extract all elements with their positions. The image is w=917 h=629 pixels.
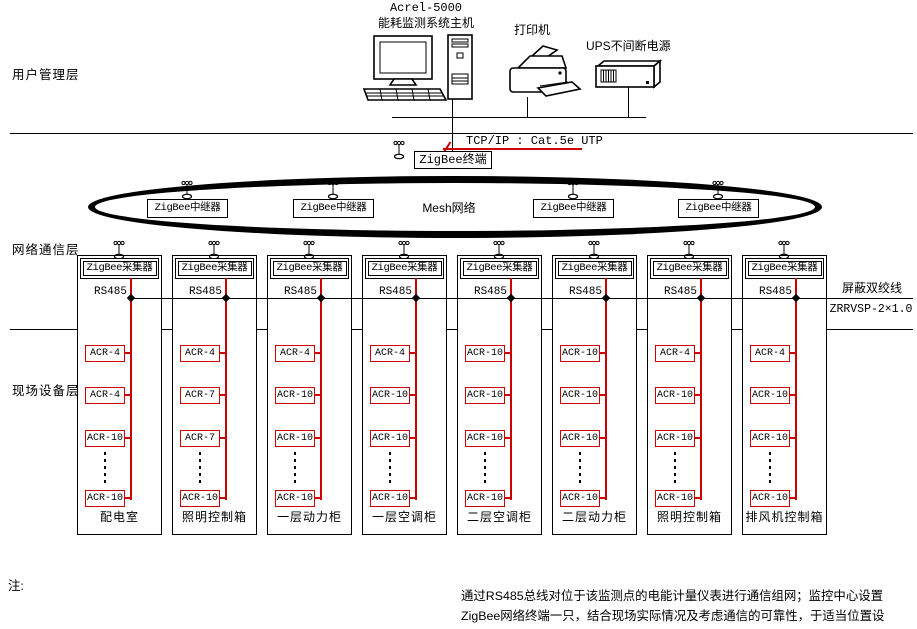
meter-connector bbox=[314, 437, 321, 439]
meter-box: ACR-10 bbox=[370, 430, 410, 447]
notes-left: 注: 1.该组网方式适合于旧工程改造及不便于施工布线的场所，整个组网方式采用Zi… bbox=[8, 536, 431, 629]
meter-connector bbox=[599, 394, 606, 396]
meter-box: ACR-10 bbox=[370, 387, 410, 404]
rs485-drop-line bbox=[320, 278, 322, 500]
zigbee-collector-label: ZigBee采集器 bbox=[558, 261, 632, 276]
meter-box: ACR-7 bbox=[180, 387, 220, 404]
monitor-point-column: ZigBee采集器 RS485 排风机控制箱 ACR-4ACR-10ACR-10… bbox=[742, 240, 827, 535]
meter-connector bbox=[219, 437, 226, 439]
meter-box: ACR-10 bbox=[655, 387, 695, 404]
rs485-label: RS485 bbox=[554, 286, 602, 298]
layer-label-network: 网络通信层 bbox=[12, 239, 80, 258]
monitor-point-column: ZigBee采集器 RS485 一层动力柜 ACR-4ACR-10ACR-10A… bbox=[267, 240, 352, 535]
meter-connector bbox=[694, 394, 701, 396]
meter-connector bbox=[694, 497, 701, 499]
zigbee-collector-label: ZigBee采集器 bbox=[653, 261, 727, 276]
printer-icon bbox=[502, 44, 584, 105]
antenna-icon bbox=[392, 140, 406, 165]
meter-box: ACR-4 bbox=[85, 345, 125, 362]
ellipsis-dots bbox=[104, 452, 107, 483]
ellipsis-dots bbox=[294, 452, 297, 483]
rs485-drop-line bbox=[225, 278, 227, 500]
lan-bus-line bbox=[392, 117, 646, 118]
rs485-drop-line bbox=[795, 278, 797, 500]
location-label: 一层空调柜 bbox=[362, 508, 447, 525]
meter-connector bbox=[409, 437, 416, 439]
tcpip-label: TCP/IP : Cat.5e UTP bbox=[466, 134, 603, 149]
rs485-drop-line bbox=[605, 278, 607, 500]
meter-connector bbox=[789, 352, 796, 354]
meter-connector bbox=[504, 394, 511, 396]
rs485-label: RS485 bbox=[269, 286, 317, 298]
antenna-icon bbox=[711, 180, 725, 205]
zigbee-collector-label: ZigBee采集器 bbox=[748, 261, 822, 276]
cable-type-label: ZRRVSP-2×1.0 bbox=[826, 303, 916, 316]
meter-box: ACR-7 bbox=[180, 430, 220, 447]
zigbee-collector-box: ZigBee采集器 bbox=[365, 258, 444, 279]
meter-connector bbox=[124, 352, 131, 354]
notes-right: 通过RS485总线对位于该监测点的电能计量仪表进行通信组网；监控中心设置ZigB… bbox=[461, 546, 884, 629]
zigbee-terminal-box: ZigBee终端 bbox=[414, 151, 492, 169]
ellipsis-dots bbox=[579, 452, 582, 483]
meter-box: ACR-10 bbox=[275, 490, 315, 507]
meter-box: ACR-10 bbox=[85, 430, 125, 447]
zigbee-collector-label: ZigBee采集器 bbox=[463, 261, 537, 276]
meter-connector bbox=[789, 497, 796, 499]
meter-box: ACR-10 bbox=[560, 430, 600, 447]
monitor-point-column: ZigBee采集器 RS485 二层空调柜 ACR-10ACR-10ACR-10… bbox=[457, 240, 542, 535]
meter-box: ACR-4 bbox=[370, 345, 410, 362]
zigbee-collector-box: ZigBee采集器 bbox=[80, 258, 159, 279]
meter-box: ACR-10 bbox=[465, 387, 505, 404]
meter-connector bbox=[504, 437, 511, 439]
zigbee-terminal-label: ZigBee终端 bbox=[419, 153, 486, 168]
rs485-drop-line bbox=[415, 278, 417, 500]
meter-box: ACR-10 bbox=[180, 490, 220, 507]
host-drop-line bbox=[452, 99, 453, 152]
rs485-label: RS485 bbox=[744, 286, 792, 298]
zigbee-collector-label: ZigBee采集器 bbox=[83, 261, 157, 276]
meter-connector bbox=[599, 352, 606, 354]
ups-icon bbox=[592, 58, 664, 95]
zigbee-collector-box: ZigBee采集器 bbox=[270, 258, 349, 279]
meter-box: ACR-4 bbox=[180, 345, 220, 362]
meter-box: ACR-10 bbox=[560, 345, 600, 362]
location-label: 一层动力柜 bbox=[267, 508, 352, 525]
meter-connector bbox=[219, 497, 226, 499]
layer-label-user: 用户管理层 bbox=[12, 64, 80, 83]
meter-connector bbox=[504, 352, 511, 354]
meter-box: ACR-4 bbox=[750, 345, 790, 362]
meter-box: ACR-10 bbox=[465, 345, 505, 362]
rs485-label: RS485 bbox=[174, 286, 222, 298]
mesh-network-label: Mesh网络 bbox=[419, 201, 479, 216]
ellipsis-dots bbox=[199, 452, 202, 483]
meter-connector bbox=[409, 497, 416, 499]
location-label: 二层空调柜 bbox=[457, 508, 542, 525]
zigbee-collector-label: ZigBee采集器 bbox=[178, 261, 252, 276]
location-label: 二层动力柜 bbox=[552, 508, 637, 525]
antenna-icon bbox=[326, 180, 340, 205]
zigbee-collector-box: ZigBee采集器 bbox=[460, 258, 539, 279]
monitor-point-column: ZigBee采集器 RS485 一层空调柜 ACR-4ACR-10ACR-10A… bbox=[362, 240, 447, 535]
meter-connector bbox=[789, 394, 796, 396]
tcpip-red-underline bbox=[443, 148, 582, 150]
meter-connector bbox=[694, 352, 701, 354]
ellipsis-dots bbox=[484, 452, 487, 483]
meter-box: ACR-10 bbox=[655, 490, 695, 507]
ellipsis-dots bbox=[674, 452, 677, 483]
rs485-label: RS485 bbox=[364, 286, 412, 298]
meter-box: ACR-10 bbox=[750, 490, 790, 507]
notes-heading: 注: bbox=[8, 576, 431, 596]
meter-box: ACR-4 bbox=[655, 345, 695, 362]
note-line: 通过RS485总线对位于该监测点的电能计量仪表进行通信组网；监控中心设置 bbox=[461, 586, 884, 606]
meter-connector bbox=[409, 394, 416, 396]
meter-connector bbox=[409, 352, 416, 354]
meter-connector bbox=[789, 437, 796, 439]
meter-connector bbox=[504, 497, 511, 499]
printer-label: 打印机 bbox=[514, 23, 550, 38]
rs485-drop-line bbox=[700, 278, 702, 500]
monitor-point-column: ZigBee采集器 RS485 照明控制箱 ACR-4ACR-10ACR-10A… bbox=[647, 240, 732, 535]
antenna-icon bbox=[566, 180, 580, 205]
monitor-point-column: ZigBee采集器 RS485 二层动力柜 ACR-10ACR-10ACR-10… bbox=[552, 240, 637, 535]
meter-box: ACR-10 bbox=[560, 490, 600, 507]
location-label: 照明控制箱 bbox=[647, 508, 732, 525]
rs485-label: RS485 bbox=[459, 286, 507, 298]
zigbee-collector-box: ZigBee采集器 bbox=[650, 258, 729, 279]
zigbee-collector-box: ZigBee采集器 bbox=[555, 258, 634, 279]
rs485-drop-line bbox=[130, 278, 132, 500]
host-title-line1: Acrel-5000 bbox=[356, 1, 496, 16]
meter-box: ACR-10 bbox=[370, 490, 410, 507]
meter-connector bbox=[314, 394, 321, 396]
meter-connector bbox=[314, 497, 321, 499]
location-label: 照明控制箱 bbox=[172, 508, 257, 525]
rs485-label: RS485 bbox=[79, 286, 127, 298]
ellipsis-dots bbox=[769, 452, 772, 483]
location-label: 配电室 bbox=[77, 508, 162, 525]
meter-connector bbox=[219, 394, 226, 396]
meter-box: ACR-10 bbox=[275, 430, 315, 447]
meter-box: ACR-4 bbox=[275, 345, 315, 362]
meter-box: ACR-10 bbox=[750, 430, 790, 447]
network-topology-diagram: 用户管理层 网络通信层 现场设备层 Acrel-5000 能耗监测系统主机 bbox=[0, 0, 917, 629]
ellipsis-dots bbox=[389, 452, 392, 483]
zigbee-collector-box: ZigBee采集器 bbox=[175, 258, 254, 279]
meter-box: ACR-10 bbox=[275, 387, 315, 404]
zigbee-collector-label: ZigBee采集器 bbox=[273, 261, 347, 276]
rs485-drop-line bbox=[510, 278, 512, 500]
zigbee-collector-label: ZigBee采集器 bbox=[368, 261, 442, 276]
location-label: 排风机控制箱 bbox=[742, 508, 827, 525]
meter-connector bbox=[599, 437, 606, 439]
shielded-pair-label: 屏蔽双绞线 bbox=[830, 281, 914, 296]
meter-box: ACR-4 bbox=[85, 387, 125, 404]
monitor-point-column: ZigBee采集器 RS485 照明控制箱 ACR-4ACR-7ACR-7ACR… bbox=[172, 240, 257, 535]
rs485-label: RS485 bbox=[649, 286, 697, 298]
meter-connector bbox=[124, 497, 131, 499]
meter-connector bbox=[694, 437, 701, 439]
note-line: ZigBee网络终端一只，结合现场实际情况及考虑通信的可靠性，于适当位置设 bbox=[461, 606, 884, 626]
layer-divider-top bbox=[10, 133, 913, 134]
meter-connector bbox=[124, 437, 131, 439]
antenna-icon bbox=[180, 180, 194, 205]
meter-box: ACR-10 bbox=[655, 430, 695, 447]
meter-connector bbox=[314, 352, 321, 354]
meter-box: ACR-10 bbox=[85, 490, 125, 507]
monitor-point-column: ZigBee采集器 RS485 配电室 ACR-4ACR-4ACR-10ACR-… bbox=[77, 240, 162, 535]
meter-box: ACR-10 bbox=[465, 430, 505, 447]
host-title-line2: 能耗监测系统主机 bbox=[356, 16, 496, 31]
meter-connector bbox=[219, 352, 226, 354]
ups-label: UPS不间断电源 bbox=[586, 39, 671, 54]
meter-connector bbox=[124, 394, 131, 396]
layer-label-field: 现场设备层 bbox=[12, 380, 80, 399]
meter-box: ACR-10 bbox=[560, 387, 600, 404]
computer-icon bbox=[360, 34, 475, 106]
meter-box: ACR-10 bbox=[465, 490, 505, 507]
meter-box: ACR-10 bbox=[750, 387, 790, 404]
meter-connector bbox=[599, 497, 606, 499]
zigbee-collector-box: ZigBee采集器 bbox=[745, 258, 824, 279]
